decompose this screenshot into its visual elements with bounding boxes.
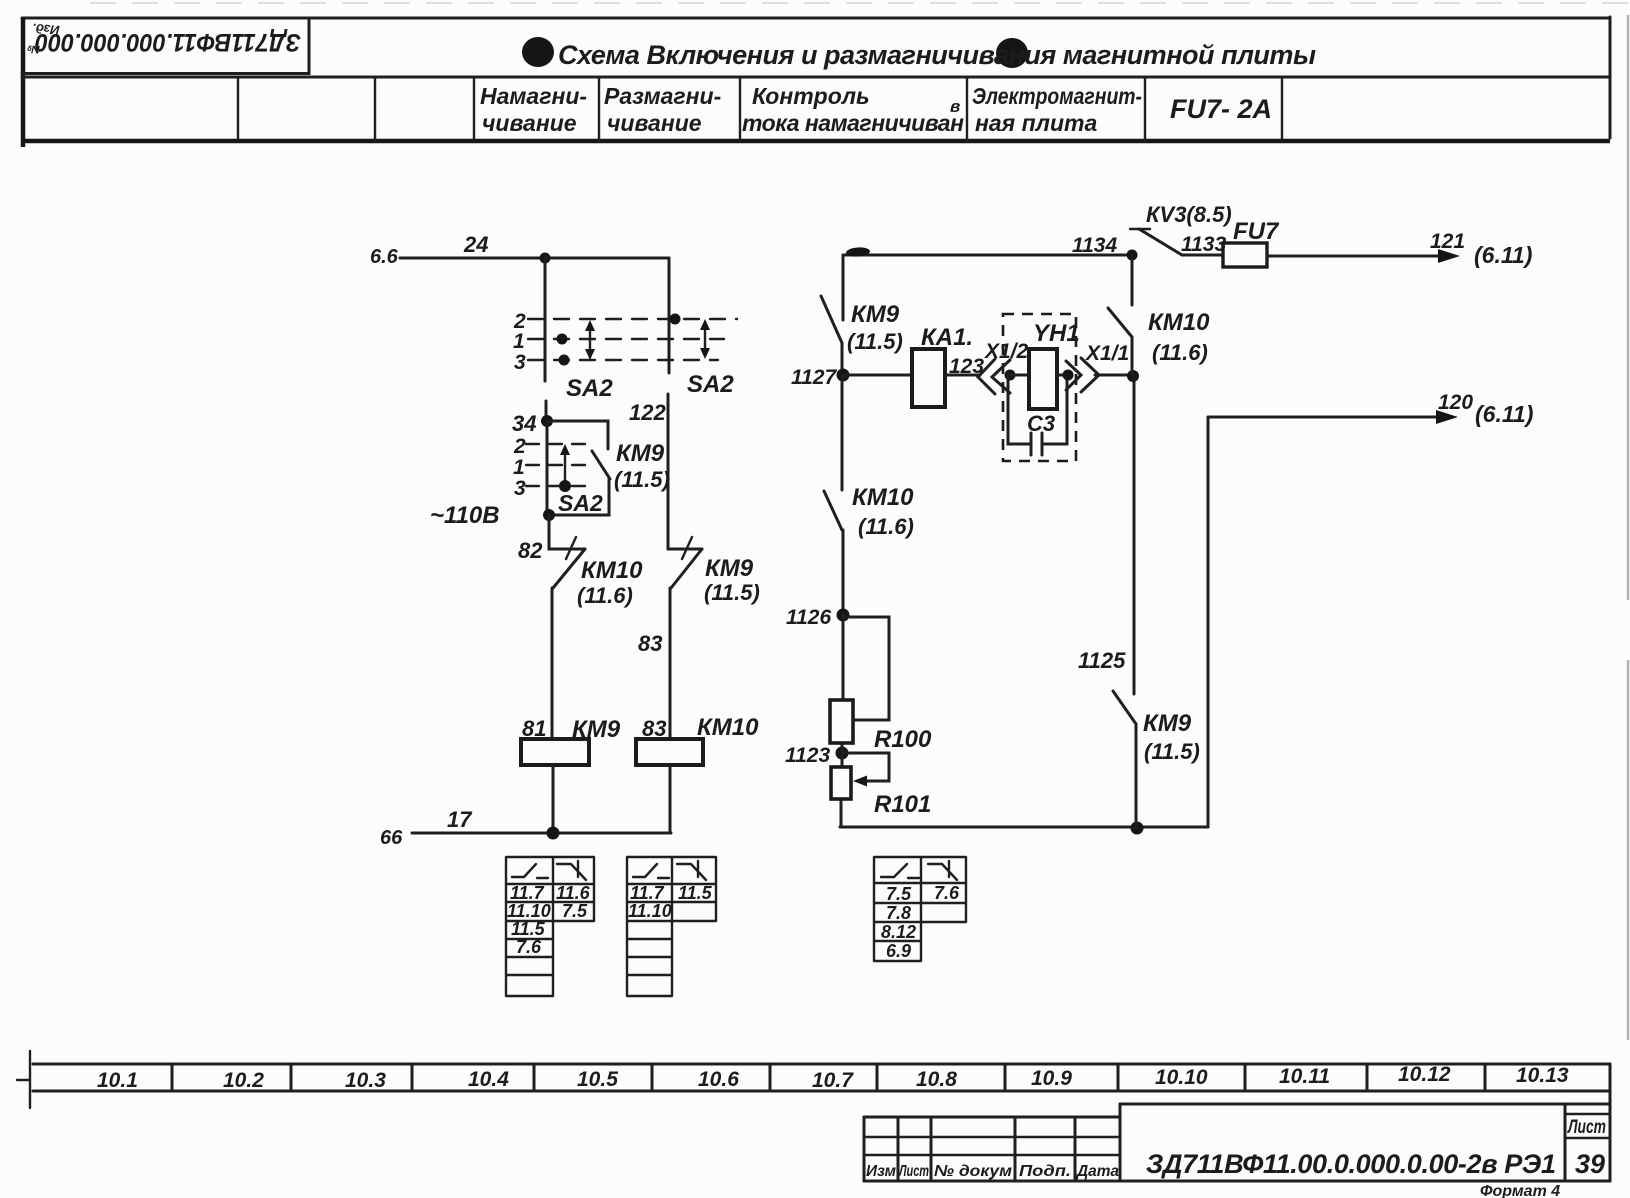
svg-text:17: 17 [447,807,473,832]
svg-text:Дата: Дата [1075,1163,1119,1180]
svg-text:№ докум: № докум [934,1163,1012,1180]
svg-text:11.5: 11.5 [511,919,546,939]
svg-text:~110В: ~110В [430,502,500,529]
svg-text:(11.5): (11.5) [614,467,670,492]
svg-text:(11.5): (11.5) [1144,739,1200,764]
svg-text:YH1: YH1 [1033,320,1080,347]
svg-text:10.10: 10.10 [1155,1066,1208,1089]
svg-text:КМ9: КМ9 [851,301,900,328]
svg-text:8.12: 8.12 [881,922,916,942]
svg-text:(6.11): (6.11) [1475,401,1533,427]
svg-text:Изд.: Изд. [32,21,61,38]
svg-text:39: 39 [1575,1149,1605,1179]
svg-text:10.9: 10.9 [1031,1067,1072,1090]
svg-text:ная плита: ная плита [975,110,1097,136]
svg-text:10.13: 10.13 [1516,1064,1569,1087]
svg-text:SA2: SA2 [558,490,603,516]
svg-text:7.5: 7.5 [562,901,588,921]
svg-text:11.10: 11.10 [628,901,672,921]
svg-text:(6.11): (6.11) [1474,242,1532,268]
svg-text:1133: 1133 [1181,233,1226,256]
svg-text:11.7: 11.7 [630,883,665,903]
svg-text:10.5: 10.5 [577,1068,618,1091]
svg-text:82: 82 [518,538,543,563]
svg-text:1: 1 [513,456,525,479]
svg-text:чивание: чивание [607,110,702,136]
svg-text:(11.6): (11.6) [1152,340,1208,365]
svg-text:чивание: чивание [482,110,577,136]
svg-text:122: 122 [629,400,666,425]
svg-text:SA2: SA2 [566,375,613,402]
svg-text:11.7: 11.7 [510,883,545,903]
svg-text:КА1.: КА1. [921,324,973,351]
svg-text:1123: 1123 [785,744,830,767]
svg-text:КМ10: КМ10 [1148,309,1210,336]
svg-text:Размагни-: Размагни- [604,83,721,109]
svg-text:Формат 4: Формат 4 [1480,1183,1560,1198]
svg-text:10.8: 10.8 [916,1068,957,1091]
svg-text:24: 24 [463,232,488,257]
svg-text:Схема Включения и размагни: Схема Включения и размагничивания магнит… [558,40,1316,70]
svg-text:X1/2: X1/2 [984,340,1029,363]
svg-text:7.8: 7.8 [886,903,911,923]
svg-text:Лист: Лист [1567,1117,1607,1138]
svg-text:R101: R101 [874,791,931,818]
svg-text:FU7: FU7 [1233,218,1280,245]
svg-text:КМ10: КМ10 [581,557,643,584]
svg-text:11.5: 11.5 [678,883,713,903]
svg-text:10.11: 10.11 [1279,1065,1330,1088]
svg-text:X1/1: X1/1 [1085,342,1129,365]
svg-text:10.6: 10.6 [698,1068,739,1091]
svg-text:(11.5): (11.5) [847,329,903,354]
svg-text:11.10: 11.10 [507,901,551,921]
svg-text:Подп.: Подп. [1019,1163,1071,1180]
svg-text:КV3(8.5): КV3(8.5) [1146,202,1232,227]
svg-text:10.12: 10.12 [1398,1063,1451,1086]
svg-text:1134: 1134 [1072,234,1117,257]
svg-text:6.6: 6.6 [370,246,399,268]
svg-text:10.3: 10.3 [345,1069,386,1092]
svg-text:3: 3 [514,351,526,374]
svg-text:Лист: Лист [898,1163,929,1180]
svg-text:Контроль: Контроль [752,83,870,109]
svg-text:(11.6): (11.6) [858,514,914,539]
svg-text:Изм: Изм [866,1163,896,1180]
svg-text:3: 3 [514,477,526,500]
svg-text:10.1: 10.1 [97,1069,138,1092]
svg-text:11.6: 11.6 [556,883,591,903]
svg-text:121: 121 [1430,230,1465,253]
svg-text:2: 2 [513,435,526,458]
svg-text:№: № [27,43,40,55]
svg-text:FU7- 2А: FU7- 2А [1170,94,1272,124]
svg-text:тока намагничиван: тока намагничиван [742,110,964,136]
svg-text:SA2: SA2 [687,371,734,398]
svg-text:КМ10: КМ10 [852,484,914,511]
svg-text:Электромагнит-: Электромагнит- [972,83,1142,109]
svg-text:ЗД711ВФ11.000.000.000: ЗД711ВФ11.000.000.000 [35,28,301,56]
svg-text:66: 66 [380,827,403,849]
svg-text:7.5: 7.5 [886,884,912,904]
svg-text:R100: R100 [874,726,932,753]
svg-text:10.7: 10.7 [812,1069,854,1092]
svg-text:1: 1 [513,330,525,353]
svg-text:(11.6): (11.6) [577,583,633,608]
svg-text:(11.5): (11.5) [704,580,760,605]
svg-text:10.2: 10.2 [223,1069,264,1092]
svg-text:7.6: 7.6 [516,937,542,957]
svg-text:7.6: 7.6 [934,883,960,903]
svg-text:10.4: 10.4 [468,1068,509,1091]
svg-text:83: 83 [638,631,662,656]
svg-text:КМ9: КМ9 [616,440,665,467]
svg-text:34: 34 [512,411,536,436]
svg-text:120: 120 [1438,391,1473,414]
svg-text:6.9: 6.9 [886,941,911,961]
svg-text:КМ9: КМ9 [572,716,621,743]
svg-text:Намагни-: Намагни- [480,83,587,109]
svg-text:КМ10: КМ10 [697,714,759,741]
svg-text:КМ9: КМ9 [1143,710,1192,737]
svg-text:1125: 1125 [1078,648,1126,673]
svg-text:ЗД711ВФ11.00.0.000.0.00-2в РЭ1: ЗД711ВФ11.00.0.000.0.00-2в РЭ1 [1146,1149,1556,1179]
svg-text:1127: 1127 [791,366,837,389]
svg-text:КМ9: КМ9 [705,555,754,582]
svg-text:1126: 1126 [786,606,831,629]
